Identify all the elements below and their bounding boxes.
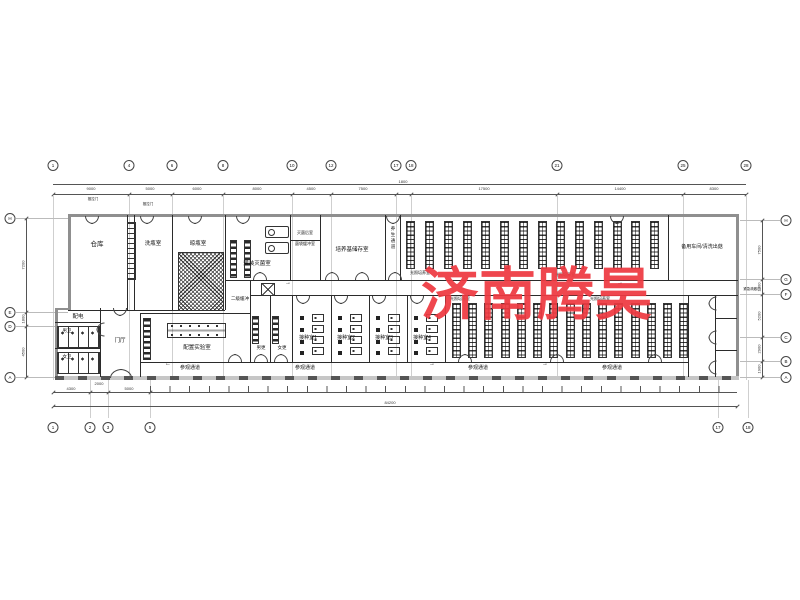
dim-text: 5000: [146, 186, 155, 191]
grid-bubble: E: [5, 307, 16, 318]
watermark-text: 济南腾昊: [421, 249, 653, 331]
dim-text: 8000: [253, 186, 262, 191]
room-label-secondary-buffer: 二级缓冲: [231, 296, 249, 302]
room-label-bag-buffer: 菌袋缓冲室: [295, 241, 315, 247]
room-label-mens-changing: 男更: [257, 345, 266, 351]
grid-bubble: 18: [743, 422, 754, 433]
grid-bubble: 4: [124, 160, 135, 171]
grid-bubble: 10: [287, 160, 298, 171]
grid-bubble: 3: [103, 422, 114, 433]
dim-text: 2000: [95, 381, 104, 386]
emergency-exit-label: 紧急疏散口: [743, 287, 761, 292]
locker: [272, 316, 279, 344]
dim-text: 7200: [21, 261, 26, 270]
south-window-wall: [55, 376, 739, 380]
room-label-mens-toilet: 男卫: [63, 328, 72, 334]
room-label-filling-sterilization: 灌装灭菌室: [243, 259, 271, 267]
grid-bubble: B: [781, 356, 792, 367]
corridor-label-visiting: 参观通道: [295, 364, 315, 371]
autoclave-symbol: [265, 242, 289, 254]
room-label-bottle-drying: 晾瓶室: [190, 239, 207, 247]
grid-bubble: 12: [326, 160, 337, 171]
dim-text: 6000: [193, 186, 202, 191]
room-label-post-sterilization: 灭菌后室: [297, 230, 313, 236]
autoclave-symbol: [265, 226, 289, 238]
dim-total: 84200: [384, 400, 395, 405]
room-label-spare-workshop: 备用车间/清洗出菇: [681, 243, 722, 250]
grid-bubble: 25: [678, 160, 689, 171]
dim-text: 2900: [757, 345, 762, 354]
grid-bubble: 1: [48, 422, 59, 433]
dim-text: 5200: [757, 312, 762, 321]
dim-text: 4300: [67, 386, 76, 391]
grid-bubble: 6: [167, 160, 178, 171]
locker-column: [143, 318, 151, 360]
dim-text: 1900: [757, 365, 762, 374]
room-label-womens-toilet: 女卫: [63, 354, 72, 360]
dim-text: 7500: [757, 246, 762, 255]
dim-text: 4500: [307, 186, 316, 191]
grid-bubble: A: [5, 372, 16, 383]
dim-text: 8300: [710, 186, 719, 191]
door-label-sliding: 推拉门: [143, 202, 154, 207]
room-label-inoculation-3: 接种室3: [375, 334, 393, 341]
corridor-label-visiting: 参观通道: [468, 364, 488, 371]
room-label-inoculation-4: 接种室4: [413, 334, 431, 341]
corridor-label-visiting: 参观通道: [602, 364, 622, 371]
dim-text: 4500: [21, 348, 26, 357]
room-label-medium-storage: 培养基储存室: [335, 245, 368, 253]
dim-text: 5000: [125, 386, 134, 391]
room-label-prep-lab: 配置实验室: [183, 343, 211, 351]
grid-bubble: 21: [552, 160, 563, 171]
grid-bubble: G: [781, 274, 792, 285]
room-label-bottle-washing: 洗瓶室: [145, 239, 162, 247]
lab-bench: [167, 323, 226, 338]
dim-text: 1800: [21, 315, 26, 324]
room-label-inoculation-1: 接种室1: [299, 334, 317, 341]
grid-bubble: 28: [741, 160, 752, 171]
grid-bubble: D: [5, 321, 16, 332]
dim-text: 7500: [359, 186, 368, 191]
ladder-symbol: [127, 222, 136, 280]
dim-text: 17500: [478, 186, 489, 191]
grid-bubble: H: [5, 213, 16, 224]
grid-bubble: C: [781, 332, 792, 343]
bottle-drying-rack: [178, 252, 224, 311]
room-label-inoculation-2: 接种室2: [337, 334, 355, 341]
room-label-warehouse: 仓库: [91, 238, 104, 248]
grid-bubble: 5: [145, 422, 156, 433]
locker: [252, 316, 259, 344]
dim-text: 14400: [614, 186, 625, 191]
entrance-door: [110, 370, 132, 378]
dim-text: 9000: [87, 186, 96, 191]
grid-bubble: F: [781, 289, 792, 300]
floor-plan-drawing: 9000 5000 6000 8000 4500 7500 1800 17500…: [0, 0, 800, 600]
grid-bubble: A: [781, 372, 792, 383]
room-label-cultivation-corridor: 养生通道: [390, 226, 396, 250]
room-label-entrance-hall: 门厅: [114, 336, 125, 344]
door-label-sliding: 推拉门: [88, 197, 99, 202]
grid-bubble: 2: [85, 422, 96, 433]
grid-bubble: 8: [218, 160, 229, 171]
shaft-symbol: [261, 283, 275, 296]
corridor-label-visiting: 参观通道: [180, 364, 200, 371]
grid-bubble: H: [781, 215, 792, 226]
room-label-womens-changing: 女更: [278, 345, 287, 351]
dim-text: 1800: [399, 179, 408, 184]
grid-bubble: 18: [406, 160, 417, 171]
grid-bubble: 1: [48, 160, 59, 171]
cabinet: [230, 240, 237, 278]
grid-bubble: 17: [391, 160, 402, 171]
room-label-power: 配电: [72, 312, 83, 320]
grid-bubble: 17: [713, 422, 724, 433]
